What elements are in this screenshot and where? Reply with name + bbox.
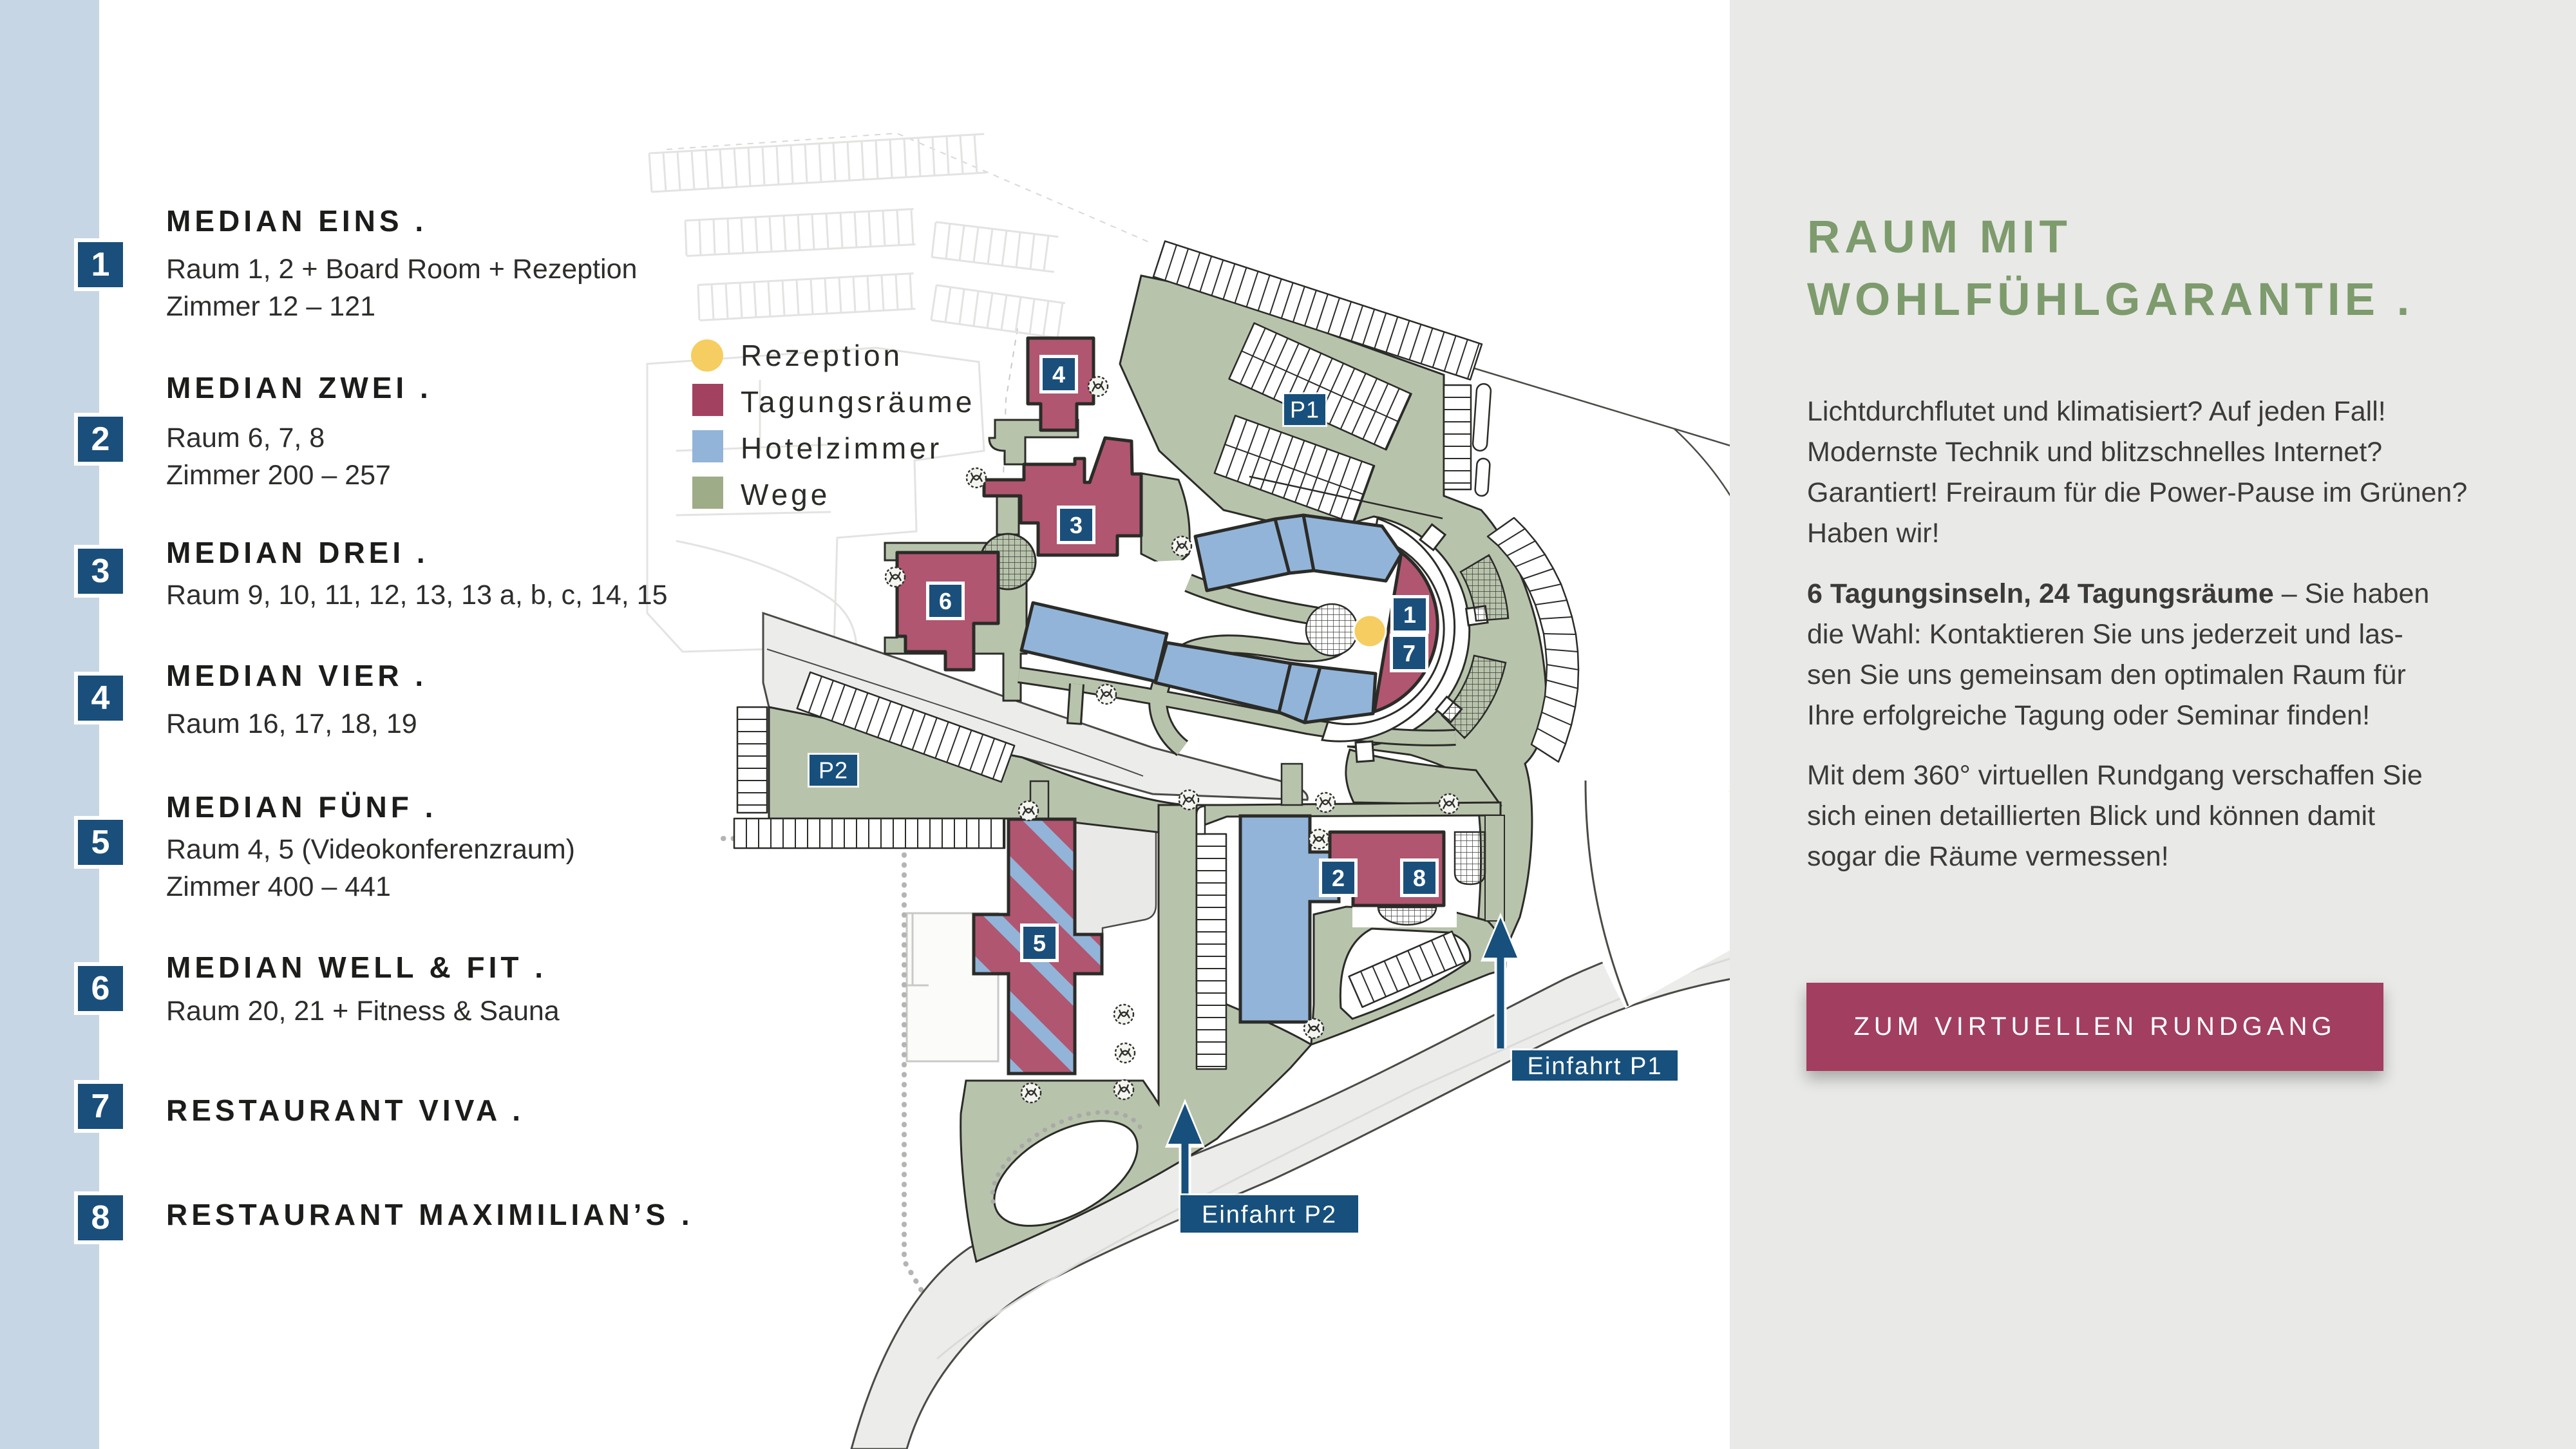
svg-text:5: 5: [1033, 930, 1046, 956]
svg-text:Rezeption: Rezeption: [741, 339, 903, 372]
svg-text:Wege: Wege: [741, 478, 830, 511]
svg-text:1: 1: [1403, 601, 1416, 628]
svg-text:6: 6: [939, 588, 952, 614]
svg-text:2: 2: [1332, 865, 1345, 891]
svg-text:P2: P2: [819, 757, 848, 784]
svg-text:7: 7: [1403, 640, 1416, 667]
svg-text:Einfahrt P2: Einfahrt P2: [1202, 1201, 1337, 1228]
svg-text:Tagungsräume: Tagungsräume: [741, 385, 975, 419]
svg-text:P1: P1: [1290, 397, 1320, 423]
svg-text:8: 8: [1413, 865, 1426, 891]
svg-text:3: 3: [1070, 512, 1083, 538]
svg-text:Hotelzimmer: Hotelzimmer: [741, 431, 942, 465]
svg-text:Einfahrt P1: Einfahrt P1: [1528, 1053, 1663, 1080]
svg-text:4: 4: [1052, 361, 1065, 388]
